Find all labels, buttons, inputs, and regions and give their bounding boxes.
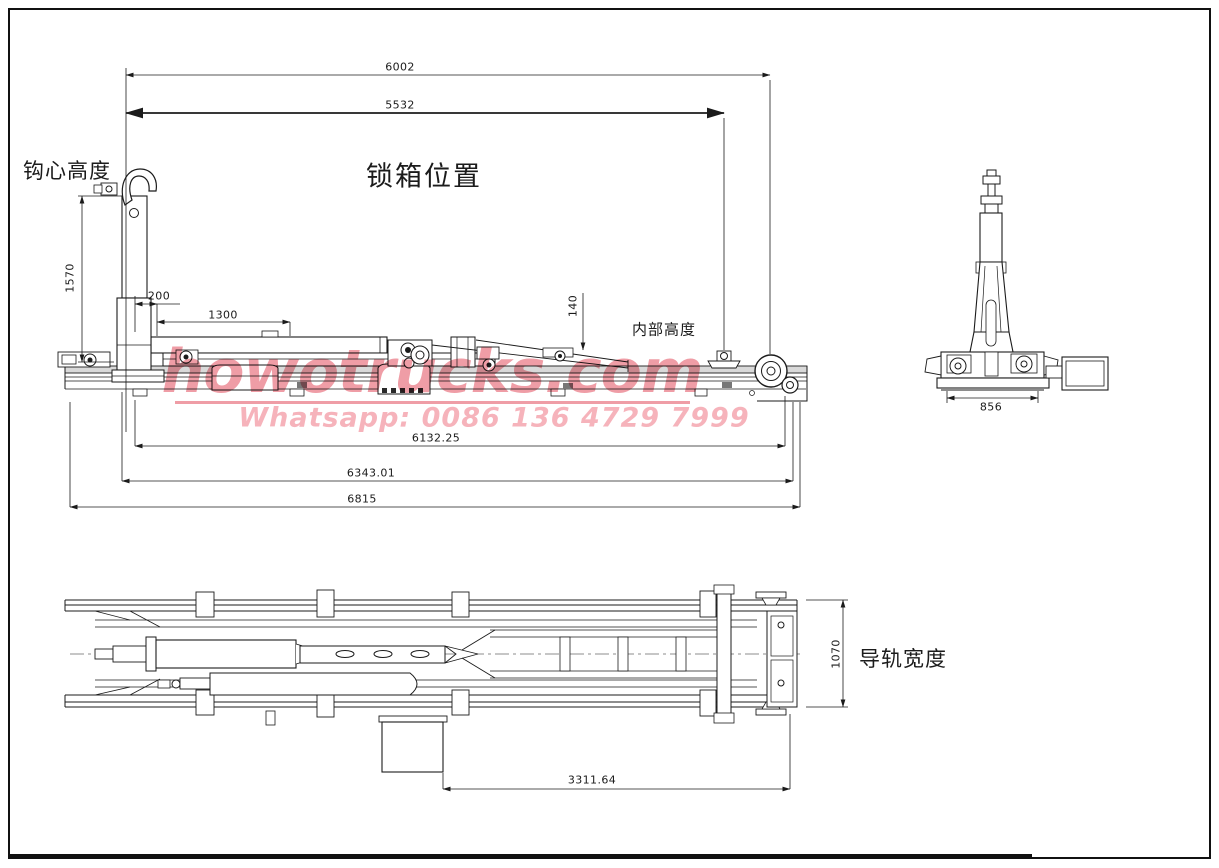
sheet-border: [9, 9, 1210, 858]
end-view: [925, 170, 1108, 390]
label-hook-center-height: 钩心高度: [23, 155, 111, 185]
dim-rear-span: 3311.64: [568, 774, 616, 787]
dim-base-width: 856: [980, 401, 1002, 414]
watermark-site: howotrucks.com: [162, 337, 703, 407]
top-view: [65, 585, 800, 772]
dim-inner-offset: 140: [567, 295, 580, 317]
cad-drawing-page: 6002 5532 1570 200 1300 140 856 6132.25 …: [0, 0, 1219, 868]
watermark-contact: Whatsapp: 0086 136 4729 7999: [238, 403, 749, 434]
dim-hook-height: 1570: [64, 263, 77, 293]
dim-lock-span: 5532: [385, 99, 415, 112]
label-guide-rail-width: 导轨宽度: [859, 643, 947, 673]
dim-rail-width: 1070: [830, 639, 843, 669]
technical-drawing-canvas: [0, 0, 1219, 868]
label-lock-box-position: 锁箱位置: [366, 155, 482, 194]
dim-frame-length-sub: 6343.01: [347, 467, 395, 480]
dim-front-span: 1300: [208, 309, 238, 322]
dim-overall-length: 6815: [347, 493, 377, 506]
dim-hook-offset: 200: [148, 290, 170, 303]
dim-overall-top: 6002: [385, 61, 415, 74]
